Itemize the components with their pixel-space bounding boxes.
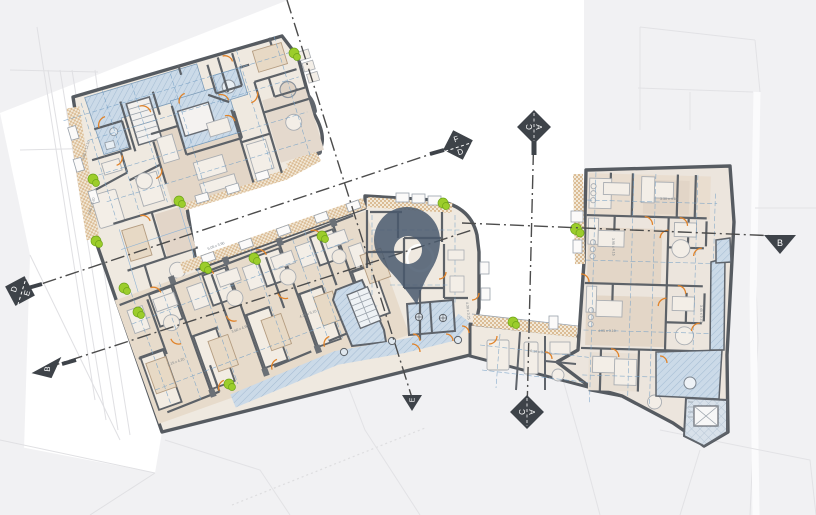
svg-text:C: C [518,409,527,415]
svg-text:3.45 x 5.20: 3.45 x 5.20 [699,305,704,323]
svg-text:E: E [410,397,417,402]
svg-text:B: B [777,238,783,248]
svg-text:B: B [43,366,52,372]
svg-text:C: C [525,124,534,130]
svg-text:A: A [534,124,543,130]
svg-text:3.95 x 4.15: 3.95 x 4.15 [611,238,616,256]
svg-text:4.05 x 3.10: 4.05 x 3.10 [598,329,616,333]
svg-text:A: A [527,409,536,415]
svg-text:3.30 x 4.60: 3.30 x 4.60 [660,197,678,201]
